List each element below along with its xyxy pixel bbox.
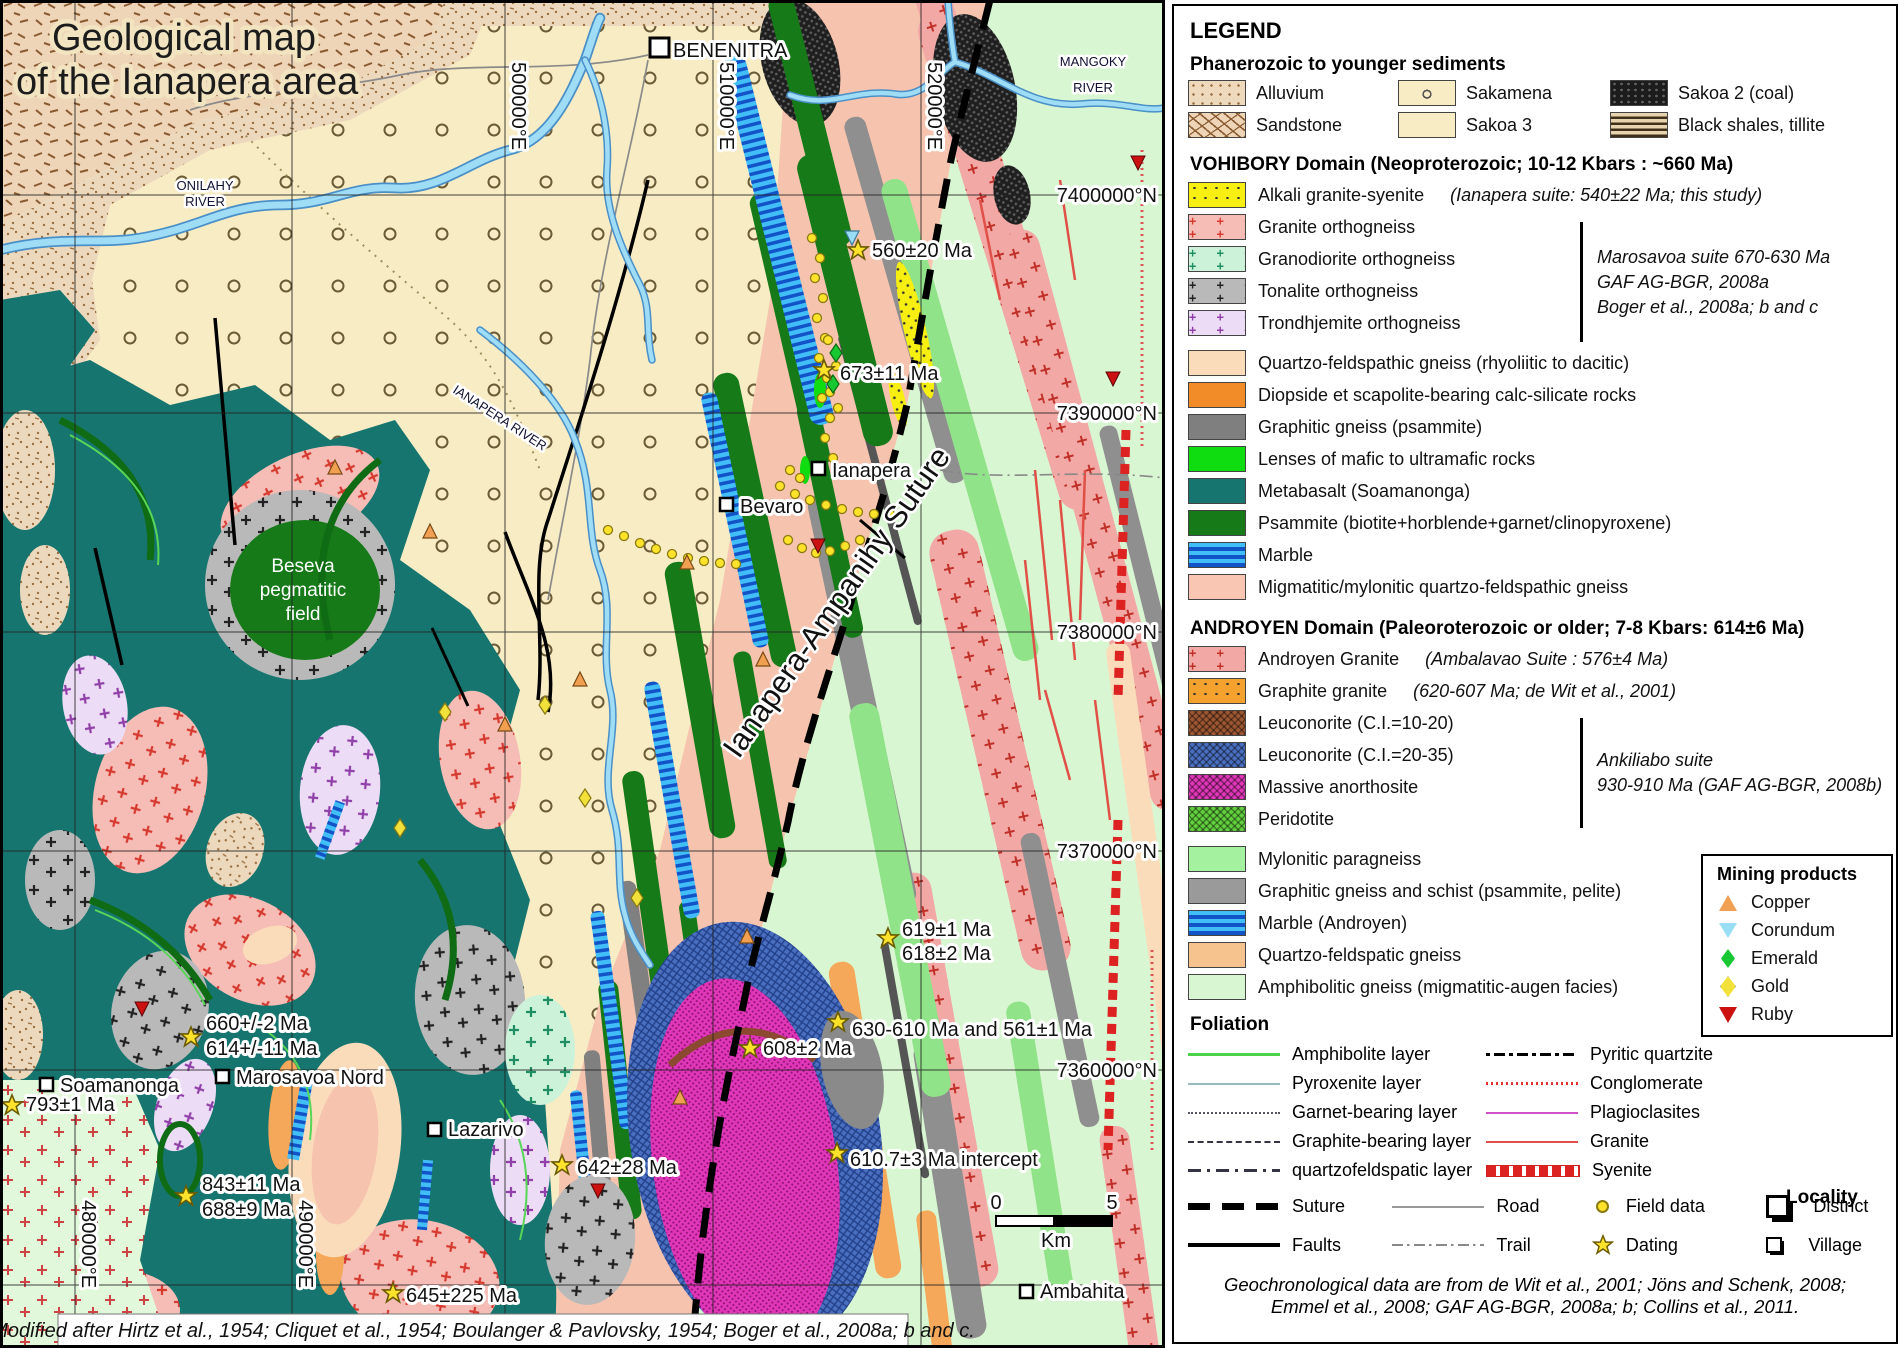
legend-label: Ruby xyxy=(1751,1004,1793,1025)
footnote-line: Geochronological data are from de Wit et… xyxy=(1188,1274,1882,1296)
beseva-label-2: pegmatitic xyxy=(260,580,347,601)
age-label-793: 793±1 Ma xyxy=(26,1094,116,1116)
legend-label: Sakoa 3 xyxy=(1466,115,1532,136)
quartzo-feldspathic-swatch xyxy=(1188,350,1246,376)
legend-label: Diopside et scapolite-bearing calc-silic… xyxy=(1258,385,1636,406)
locality-label-lazarivo: Lazarivo xyxy=(448,1119,524,1141)
amphibolitic-gneiss-swatch xyxy=(1188,974,1246,1000)
note-line: Ankiliabo suite xyxy=(1597,750,1882,771)
legend-label: Psammite (biotite+horblende+garnet/clino… xyxy=(1258,513,1671,534)
legend-label: Quartzo-feldspatic gneiss xyxy=(1258,945,1461,966)
map-title-line2: of the Ianapera area xyxy=(16,61,359,103)
marble-swatch xyxy=(1188,542,1246,568)
grid-easting-500000: 500000°E xyxy=(507,62,529,150)
age-label-642: 642±28 Ma xyxy=(577,1157,678,1179)
beseva-label-3: field xyxy=(286,604,321,625)
granodiorite-orthogneiss-swatch xyxy=(1188,246,1246,272)
granite-line xyxy=(1486,1141,1578,1143)
suture-symbol xyxy=(1188,1203,1280,1210)
age-label-618: 618±2 Ma xyxy=(902,943,992,965)
grid-easting-510000: 510000°E xyxy=(715,62,737,150)
vohibory-units-2: Quartzo-feldspathic gneiss (rhyoliitic t… xyxy=(1188,350,1896,600)
legend-label: Marble xyxy=(1258,545,1313,566)
grid-easting-490000: 490000°E xyxy=(294,1200,316,1288)
legend-label: Conglomerate xyxy=(1590,1073,1703,1094)
migmatitic-swatch xyxy=(1188,574,1246,600)
legend-label: Syenite xyxy=(1592,1160,1652,1181)
scale-unit: Km xyxy=(1041,1230,1071,1252)
ambalavao-note: (Ambalavao Suite : 576±4 Ma) xyxy=(1425,649,1668,670)
road-symbol xyxy=(1392,1206,1484,1208)
legend-label: Road xyxy=(1496,1196,1539,1217)
legend-label: Garnet-bearing layer xyxy=(1292,1102,1480,1123)
map-svg: 0 5 Km Geological map of the Ianapera ar… xyxy=(0,0,1165,1348)
conglomerate-line xyxy=(1486,1082,1578,1085)
sediments-grid: Alluvium Sakamena Sakoa 2 (coal) Sandsto… xyxy=(1188,80,1896,138)
map-geology-layer xyxy=(0,0,1165,1348)
trondhjemite-orthogneiss-swatch xyxy=(1188,310,1246,336)
legend-label: Emerald xyxy=(1751,948,1818,969)
mining-header: Mining products xyxy=(1717,864,1891,885)
age-label-560: 560±20 Ma xyxy=(872,240,973,262)
note-line: Boger et al., 2008a; b and c xyxy=(1597,297,1830,318)
massive-anorthosite-swatch xyxy=(1188,774,1246,800)
plagioclasites-line xyxy=(1486,1112,1578,1114)
legend-label: Sakamena xyxy=(1466,83,1552,104)
sediments-header: Phanerozoic to younger sediments xyxy=(1190,54,1896,76)
map-title-line1: Geological map xyxy=(52,17,316,59)
grid-northing-7400000: 7400000°N xyxy=(1057,185,1157,207)
syenite-line xyxy=(1486,1165,1580,1177)
age-label-630: 630-610 Ma and 561±1 Ma xyxy=(852,1019,1093,1041)
mylonitic-paragneiss-swatch xyxy=(1188,846,1246,872)
emerald-icon xyxy=(1717,949,1739,968)
gold-icon xyxy=(1717,976,1739,997)
sakamena-swatch xyxy=(1398,80,1456,106)
legend-label: Trail xyxy=(1496,1235,1530,1256)
tonalite-orthogneiss-swatch xyxy=(1188,278,1246,304)
note-line: Marosavoa suite 670-630 Ma xyxy=(1597,247,1830,268)
grid-northing-7390000: 7390000°N xyxy=(1057,403,1157,425)
black-shales-swatch xyxy=(1610,112,1668,138)
quartzo-feldspatic-swatch xyxy=(1188,942,1246,968)
legend-label: Alluvium xyxy=(1256,83,1324,104)
grid-northing-7380000: 7380000°N xyxy=(1057,622,1157,644)
geological-map-page: 0 5 Km Geological map of the Ianapera ar… xyxy=(0,0,1904,1348)
legend-label: quartzofeldspatic layer xyxy=(1292,1160,1480,1181)
ankiliabo-suite-note: Ankiliabo suite 930-910 Ma (GAF AG-BGR, … xyxy=(1580,718,1882,828)
river-label-mangoky-2: RIVER xyxy=(1073,80,1113,95)
metabasalt-swatch xyxy=(1188,478,1246,504)
scale-start: 0 xyxy=(990,1192,1001,1214)
legend-label: Peridotite xyxy=(1258,809,1334,830)
vohibory-header: VOHIBORY Domain (Neoproterozoic; 10-12 K… xyxy=(1190,154,1896,176)
field-data-icon xyxy=(1592,1200,1614,1213)
legend-label: Trondhjemite orthogneiss xyxy=(1258,313,1460,334)
legend-label: Sandstone xyxy=(1256,115,1342,136)
river-label-onilahy: ONILAHY xyxy=(176,178,233,193)
village-icon xyxy=(1766,1237,1782,1253)
legend-label: Graphite-bearing layer xyxy=(1292,1131,1480,1152)
androyen-units: Androyen Granite(Ambalavao Suite : 576±4… xyxy=(1188,646,1896,832)
legend-label: Leuconorite (C.I.=20-35) xyxy=(1258,745,1454,766)
legend-label: Suture xyxy=(1292,1196,1345,1217)
age-label-614: 614+/-11 Ma xyxy=(206,1038,318,1060)
corundum-icon xyxy=(1717,923,1739,938)
garnet-layer-line xyxy=(1188,1112,1280,1114)
legend-label: Field data xyxy=(1626,1196,1705,1217)
legend-label: Massive anorthosite xyxy=(1258,777,1418,798)
age-label-660: 660+/-2 Ma xyxy=(206,1013,309,1035)
copper-icon xyxy=(1717,895,1739,911)
androyen-granite-swatch xyxy=(1188,646,1246,672)
credit-text: Modified after Hirtz et al., 1954; Cliqu… xyxy=(0,1320,975,1342)
legend-label: Graphitic gneiss (psammite) xyxy=(1258,417,1482,438)
age-label-608: 608±2 Ma xyxy=(763,1038,853,1060)
marble-androyen-swatch xyxy=(1188,910,1246,936)
legend-label: Black shales, tillite xyxy=(1678,115,1825,136)
legend-title: LEGEND xyxy=(1190,18,1896,44)
sakoa3-swatch xyxy=(1398,112,1456,138)
legend-label: Quartzo-feldspathic gneiss (rhyoliitic t… xyxy=(1258,353,1629,374)
legend-label: Graphitic gneiss and schist (psammite, p… xyxy=(1258,881,1621,902)
sandstone-swatch xyxy=(1188,112,1246,138)
age-label-688: 688±9 Ma xyxy=(202,1199,292,1221)
quartzofeldspatic-layer-line xyxy=(1188,1169,1280,1172)
age-label-645: 645±225 Ma xyxy=(406,1285,518,1307)
trail-symbol xyxy=(1392,1244,1484,1246)
legend-label: Copper xyxy=(1751,892,1810,913)
graphite-layer-line xyxy=(1188,1141,1280,1143)
legend-label: Mylonitic paragneiss xyxy=(1258,849,1421,870)
age-label-610: 610.7±3 Ma intercept xyxy=(850,1149,1038,1171)
leuconorite-10-20-swatch xyxy=(1188,710,1246,736)
locality-header: Locality xyxy=(1786,1187,1858,1209)
peridotite-swatch xyxy=(1188,806,1246,832)
vohibory-units: Alkali granite-syenite(Ianapera suite: 5… xyxy=(1188,182,1896,336)
scale-end: 5 xyxy=(1106,1192,1117,1214)
legend-label: Metabasalt (Soamanonga) xyxy=(1258,481,1470,502)
sakoa2-swatch xyxy=(1610,80,1668,106)
beseva-label-1: Beseva xyxy=(271,556,335,577)
grid-easting-520000: 520000°E xyxy=(923,62,945,150)
alluvium-swatch xyxy=(1188,80,1246,106)
legend-label: Faults xyxy=(1292,1235,1341,1256)
marosavoa-suite-note: Marosavoa suite 670-630 Ma GAF AG-BGR, 2… xyxy=(1580,222,1830,342)
foliation-rows: Amphibolite layerPyritic quartzite Pyrox… xyxy=(1188,1044,1896,1181)
locality-label-ianapera: Ianapera xyxy=(832,460,912,482)
legend-label: Alkali granite-syenite xyxy=(1258,185,1424,206)
legend-label: Granite orthogneiss xyxy=(1258,217,1415,238)
locality-label-ambahita: Ambahita xyxy=(1040,1281,1125,1303)
legend-label: Marble (Androyen) xyxy=(1258,913,1407,934)
legend-label: Leuconorite (C.I.=10-20) xyxy=(1258,713,1454,734)
graphite-granite-swatch xyxy=(1188,678,1246,704)
grid-northing-7360000: 7360000°N xyxy=(1057,1060,1157,1082)
graphite-granite-note: (620-607 Ma; de Wit et al., 2001) xyxy=(1413,681,1676,702)
dating-star-icon xyxy=(1592,1232,1614,1258)
legend-label: Migmatitic/mylonitic quartzo-feldspathic… xyxy=(1258,577,1628,598)
legend-label: Village xyxy=(1808,1235,1862,1256)
legend-label: Plagioclasites xyxy=(1590,1102,1700,1123)
diopside-swatch xyxy=(1188,382,1246,408)
legend-label: Tonalite orthogneiss xyxy=(1258,281,1418,302)
footnote-line: Emmel et al., 2008; GAF AG-BGR, 2008a; b… xyxy=(1188,1296,1882,1318)
age-label-619: 619±1 Ma xyxy=(902,919,992,941)
river-label-onilahy-2: RIVER xyxy=(185,194,225,209)
mining-products-box: Mining products Copper Corundum Emerald … xyxy=(1701,854,1893,1037)
legend-label: Pyritic quartzite xyxy=(1590,1044,1713,1065)
alkali-note: (Ianapera suite: 540±22 Ma; this study) xyxy=(1450,185,1762,206)
pyroxenite-line xyxy=(1188,1083,1280,1085)
legend-panel: LEGEND Phanerozoic to younger sediments … xyxy=(1172,4,1898,1344)
legend-label: Androyen Granite xyxy=(1258,649,1399,670)
legend-label: Dating xyxy=(1626,1235,1678,1256)
legend-label: Graphite granite xyxy=(1258,681,1387,702)
legend-label: Amphibolite layer xyxy=(1292,1044,1480,1065)
legend-label: Amphibolitic gneiss (migmatitic-augen fa… xyxy=(1258,977,1618,998)
line-symbols-section: Locality Suture Road Field data District… xyxy=(1188,1195,1896,1258)
legend-label: Corundum xyxy=(1751,920,1835,941)
faults-symbol xyxy=(1188,1243,1280,1247)
map-canvas: 0 5 Km Geological map of the Ianapera ar… xyxy=(0,0,1165,1348)
androyen-header: ANDROYEN Domain (Paleoroterozoic or olde… xyxy=(1190,618,1896,640)
age-label-673: 673±11 Ma xyxy=(840,363,939,385)
grid-northing-7370000: 7370000°N xyxy=(1057,841,1157,863)
alkali-granite-swatch xyxy=(1188,182,1246,208)
river-label-mangoky: MANGOKY xyxy=(1060,54,1127,69)
leuconorite-20-35-swatch xyxy=(1188,742,1246,768)
legend-label: Gold xyxy=(1751,976,1789,997)
legend-footnote: Geochronological data are from de Wit et… xyxy=(1188,1274,1896,1318)
map-credit: Modified after Hirtz et al., 1954; Cliqu… xyxy=(0,1314,975,1346)
granite-orthogneiss-swatch xyxy=(1188,214,1246,240)
graphitic-schist-swatch xyxy=(1188,878,1246,904)
locality-label-marosavoa-nord: Marosavoa Nord xyxy=(236,1067,384,1089)
legend-label: Pyroxenite layer xyxy=(1292,1073,1480,1094)
legend-label: Lenses of mafic to ultramafic rocks xyxy=(1258,449,1535,470)
legend-label: Granite xyxy=(1590,1131,1649,1152)
legend-label: Granodiorite orthogneiss xyxy=(1258,249,1455,270)
locality-label-benenitra: BENENITRA xyxy=(673,40,788,62)
age-label-843: 843±11 Ma xyxy=(202,1174,301,1196)
grid-easting-480000: 480000°E xyxy=(77,1200,99,1288)
ruby-icon xyxy=(1717,1007,1739,1023)
graphitic-gneiss-swatch xyxy=(1188,414,1246,440)
locality-label-bevaro: Bevaro xyxy=(740,496,803,518)
amphibolite-line xyxy=(1188,1053,1280,1056)
mafic-lenses-swatch xyxy=(1188,446,1246,472)
note-line: 930-910 Ma (GAF AG-BGR, 2008b) xyxy=(1597,775,1882,796)
pyritic-quartzite-line xyxy=(1486,1053,1578,1056)
psammite-swatch xyxy=(1188,510,1246,536)
note-line: GAF AG-BGR, 2008a xyxy=(1597,272,1830,293)
legend-label: Sakoa 2 (coal) xyxy=(1678,83,1794,104)
